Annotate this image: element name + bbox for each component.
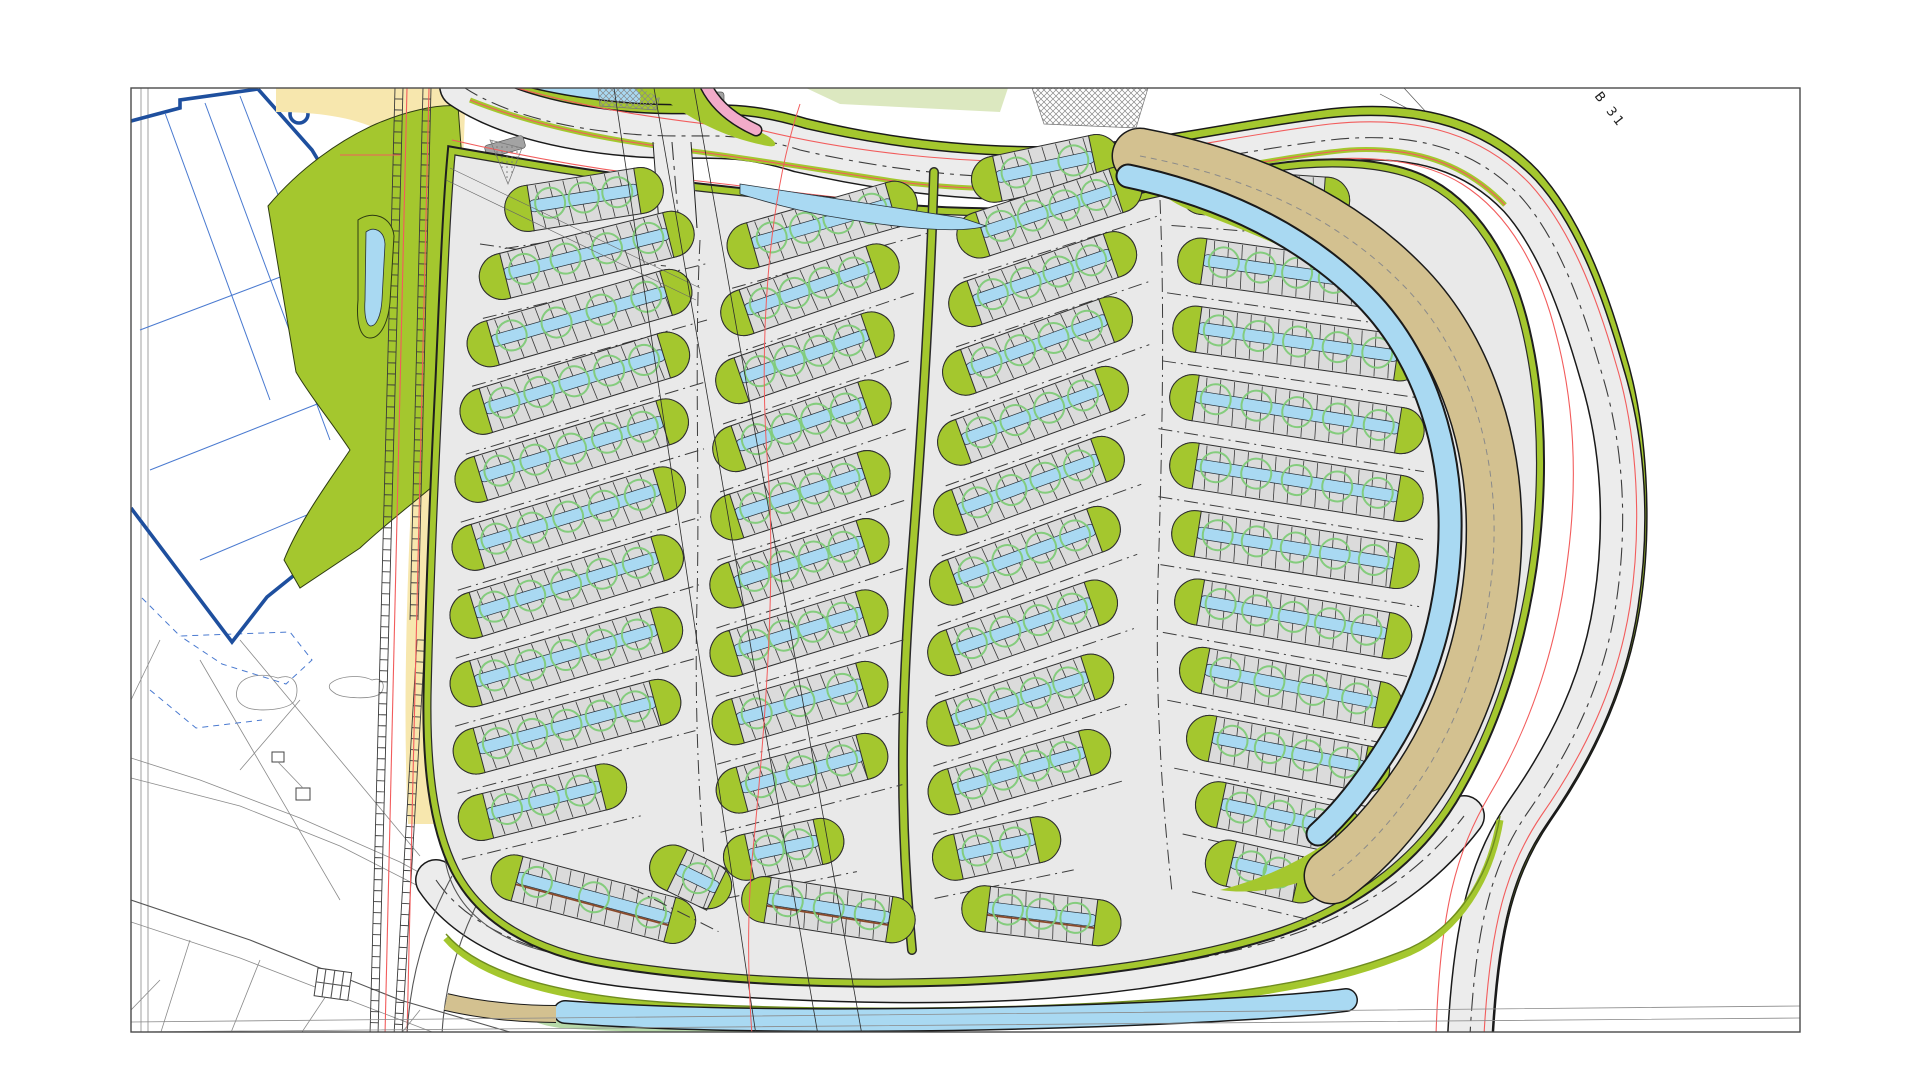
- boundary-dashed-blue: [150, 690, 262, 728]
- boundary-dashed-blue: [142, 598, 312, 684]
- survey-marker: [296, 788, 310, 800]
- context-pond: [236, 675, 297, 710]
- b31-road-label: B 31: [1591, 89, 1628, 131]
- survey-marker: [272, 752, 284, 762]
- context-road: [131, 922, 440, 1035]
- building-outline: [131, 89, 258, 121]
- south-bank: [446, 1002, 556, 1014]
- context-road: [131, 778, 430, 892]
- survey-link: [278, 762, 303, 788]
- context-shed: [314, 968, 352, 1000]
- site-plan-canvas: B 31: [0, 0, 1920, 1080]
- context-pond: [329, 677, 383, 698]
- paved-area-hatch: [1032, 88, 1148, 128]
- lime-meadow: [806, 88, 1008, 112]
